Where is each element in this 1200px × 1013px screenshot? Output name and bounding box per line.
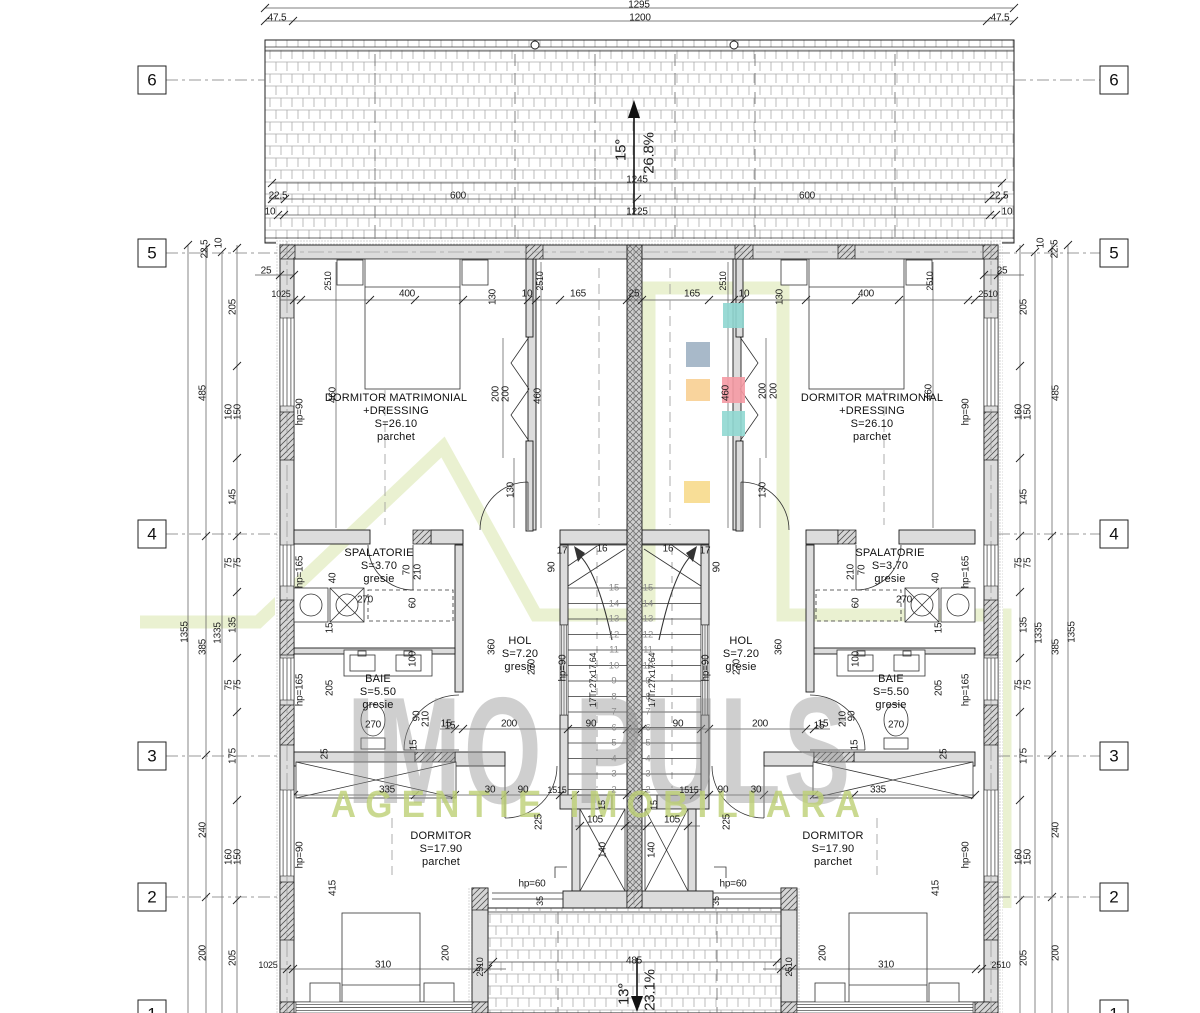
dim-label: 1355 <box>180 621 191 642</box>
grid-marker-right-1: 1 <box>1100 1000 1129 1013</box>
dim-label: 100 <box>408 651 419 667</box>
dim-label: hp=60 <box>518 879 545 890</box>
stair-tread-number: 3 <box>645 769 650 780</box>
dim-label: 2510 <box>535 271 545 290</box>
dim-label: 130 <box>775 289 786 305</box>
dim-label: 25 <box>997 266 1008 277</box>
dim-label: 200 <box>501 719 517 730</box>
dim-label: 26.8% <box>641 132 658 174</box>
grid-marker-left-4: 4 <box>138 520 167 549</box>
dim-label: 23.1% <box>642 969 659 1011</box>
stair-tread-number: 6 <box>611 722 616 733</box>
dim-label: 2510 <box>718 271 728 290</box>
dim-label: 25 <box>939 749 950 760</box>
dim-label: 210 <box>413 564 424 580</box>
dim-label: 205 <box>934 680 945 696</box>
dim-label: 200 <box>758 383 769 399</box>
furniture-swatch <box>686 379 710 401</box>
dim-label: hp=90 <box>961 841 972 868</box>
dim-label: 225 <box>722 814 733 830</box>
dim-label: 75 <box>1023 558 1034 569</box>
dim-label: 130 <box>758 482 769 498</box>
stair-tread-number: 3 <box>611 769 616 780</box>
dim-label: 22.5 <box>990 191 1009 202</box>
dim-label: 485 <box>626 956 642 967</box>
dim-label: 415 <box>931 880 942 896</box>
dim-label: 240 <box>198 822 209 838</box>
grid-marker-left-1: 1 <box>138 1000 167 1013</box>
dim-label: 22.5 <box>1050 240 1061 259</box>
dim-label: 47.5 <box>991 13 1010 24</box>
dim-label: 1200 <box>629 13 650 24</box>
dim-label: 15 <box>649 800 659 810</box>
dim-label: 15 <box>850 740 861 751</box>
dim-label: 10 <box>265 207 276 218</box>
dim-label: 105 <box>587 815 603 826</box>
dim-label: 1355 <box>1067 621 1078 642</box>
dim-label: 60 <box>408 598 419 609</box>
dim-label: 200 <box>198 945 209 961</box>
dim-label: 10 <box>522 289 533 300</box>
dim-label: 30 <box>751 785 762 796</box>
dim-label: 310 <box>375 960 391 971</box>
stair-tread-number: 8 <box>611 691 616 702</box>
dim-label: 200 <box>752 719 768 730</box>
dim-label: 460 <box>533 388 544 404</box>
dim-label: 90 <box>673 719 684 730</box>
dim-label: 22.5 <box>200 240 211 259</box>
dim-label: 90 <box>518 785 529 796</box>
dim-label: 16 <box>597 544 608 555</box>
dim-label: 40 <box>328 573 339 584</box>
room-label: BAIES=5.50gresie <box>873 673 909 712</box>
furniture-swatch <box>686 342 710 367</box>
dim-label: 485 <box>1051 385 1062 401</box>
dim-label: hp=90 <box>558 654 569 681</box>
stair-tread-number: 11 <box>609 645 619 656</box>
dim-label: 270 <box>357 595 373 606</box>
dim-label: 15° <box>613 139 630 161</box>
grid-marker-right-5: 5 <box>1100 239 1129 268</box>
dim-label: 35 <box>535 896 545 906</box>
dim-label: 205 <box>228 299 239 315</box>
dim-label: 90 <box>586 719 597 730</box>
dim-label: 2510 <box>323 271 333 290</box>
dim-label: 335 <box>870 785 886 796</box>
dim-label: 25 <box>629 289 640 300</box>
furniture-swatch <box>723 303 744 328</box>
dim-label: 205 <box>325 680 336 696</box>
dim-label: 205 <box>228 950 239 966</box>
dim-label: 400 <box>858 289 874 300</box>
dim-label: 1025 <box>271 289 290 299</box>
dim-label: hp=165 <box>295 556 306 588</box>
stair-tread-number: 2 <box>645 785 650 796</box>
dim-label: 145 <box>228 489 239 505</box>
room-label: DORMITORS=17.90parchet <box>802 830 863 869</box>
dim-label: 415 <box>328 880 339 896</box>
dim-label: 75 <box>233 680 244 691</box>
grid-marker-left-3: 3 <box>138 742 167 771</box>
dim-label: 200 <box>1051 945 1062 961</box>
dim-label: 600 <box>799 191 815 202</box>
room-label: HOLS=7.20gresie <box>723 635 759 674</box>
stair-tread-number: 9 <box>611 676 616 687</box>
dim-label: 17Tr.27x17.64 <box>647 653 657 708</box>
dim-label: hp=60 <box>719 879 746 890</box>
grid-marker-right-6: 6 <box>1100 66 1129 95</box>
dim-label: 1335 <box>1034 622 1045 643</box>
dim-label: 100 <box>851 651 862 667</box>
stair-tread-number: 5 <box>611 738 616 749</box>
dim-label: 2510 <box>978 289 997 299</box>
dim-label: 90 <box>547 562 558 573</box>
dim-label: 15 <box>597 800 607 810</box>
dim-label: 15 <box>409 740 420 751</box>
dim-label: 90 <box>712 562 723 573</box>
grid-marker-left-5: 5 <box>138 239 167 268</box>
dim-label: 1225 <box>626 207 647 218</box>
dim-label: 360 <box>774 639 785 655</box>
dim-label: 225 <box>534 814 545 830</box>
stair-tread-number: 7 <box>645 707 650 718</box>
dim-label: 1295 <box>628 0 649 11</box>
dim-label: 205 <box>1019 950 1030 966</box>
dim-label: 17 <box>700 546 711 557</box>
dim-label: hp=90 <box>701 654 712 681</box>
stair-tread-number: 7 <box>611 707 616 718</box>
stair-tread-number: 5 <box>645 738 650 749</box>
grid-marker-left-2: 2 <box>138 883 167 912</box>
stair-tread-number: 2 <box>611 785 616 796</box>
dim-label: 1515 <box>679 785 698 795</box>
dim-label: 335 <box>379 785 395 796</box>
floorplan-canvas: IMO PULS AGENTIE IMOBILIARA 129547.51200… <box>0 0 1200 1013</box>
dim-label: 30 <box>485 785 496 796</box>
stair-tread-number: 15 <box>609 583 620 594</box>
dim-label: 310 <box>878 960 894 971</box>
dim-label: 10 <box>739 289 750 300</box>
dim-label: 385 <box>1051 639 1062 655</box>
dim-label: 130 <box>488 289 499 305</box>
dim-label: 240 <box>1051 822 1062 838</box>
stair-tread-number: 15 <box>643 583 654 594</box>
dim-label: 1245 <box>626 175 647 186</box>
stair-tread-number: 13 <box>609 614 620 625</box>
dim-label: 150 <box>233 404 244 420</box>
dim-label: hp=165 <box>961 556 972 588</box>
dim-label: 90 <box>718 785 729 796</box>
dim-label: 200 <box>818 945 829 961</box>
dim-label: 10 <box>1036 238 1047 249</box>
furniture-swatch <box>722 411 745 436</box>
dim-label: 270 <box>365 720 381 731</box>
room-label: SPALATORIES=3.70gresie <box>855 547 924 586</box>
dim-label: 47.5 <box>268 13 287 24</box>
dim-label: 200 <box>501 386 512 402</box>
dim-label: 60 <box>851 598 862 609</box>
room-label: HOLS=7.20gresie <box>502 635 538 674</box>
stair-tread-number: 14 <box>643 598 654 609</box>
dim-label: 1335 <box>213 622 224 643</box>
dim-label: 17 <box>557 546 568 557</box>
stair-tread-number: 12 <box>609 629 620 640</box>
stair-tread-number: 12 <box>643 629 654 640</box>
dim-label: 2510 <box>475 957 485 976</box>
room-label: DORMITOR MATRIMONIAL+DRESSINGS=26.10parc… <box>801 392 943 444</box>
dim-label: 145 <box>1019 489 1030 505</box>
dim-label: 16 <box>663 544 674 555</box>
room-label: DORMITOR MATRIMONIAL+DRESSINGS=26.10parc… <box>325 392 467 444</box>
dim-label: 25 <box>320 749 331 760</box>
dim-label: 270 <box>888 720 904 731</box>
dim-label: 75 <box>1023 680 1034 691</box>
dim-label: 10 <box>214 238 225 249</box>
dim-label: 15 <box>818 719 829 730</box>
dim-label: 130 <box>506 482 517 498</box>
dim-label: 105 <box>664 815 680 826</box>
room-label: DORMITORS=17.90parchet <box>410 830 471 869</box>
dim-label: 400 <box>399 289 415 300</box>
dim-label: 35 <box>711 896 721 906</box>
dim-label: hp=165 <box>295 674 306 706</box>
stair-tread-number: 14 <box>609 598 620 609</box>
dim-label: 485 <box>198 385 209 401</box>
dim-label: 2510 <box>925 271 935 290</box>
grid-marker-left-6: 6 <box>138 66 167 95</box>
dim-label: 2510 <box>784 957 794 976</box>
dim-label: 15 <box>325 623 336 634</box>
stair-tread-number: 10 <box>609 660 620 671</box>
stair-tread-number: 4 <box>645 753 650 764</box>
dim-label: 360 <box>487 639 498 655</box>
grid-marker-right-2: 2 <box>1100 883 1129 912</box>
dim-label: 75 <box>233 558 244 569</box>
dim-label: 15 <box>441 719 452 730</box>
room-label: BAIES=5.50gresie <box>360 673 396 712</box>
dim-label: 2510 <box>991 960 1010 970</box>
dim-label: 1025 <box>258 960 277 970</box>
dim-label: hp=90 <box>961 398 972 425</box>
dim-label: 165 <box>570 289 586 300</box>
dim-label: 135 <box>228 617 239 633</box>
dim-label: 135 <box>1019 617 1030 633</box>
dim-label: 200 <box>441 945 452 961</box>
dim-label: 200 <box>769 383 780 399</box>
dim-label: 175 <box>1019 748 1030 764</box>
stair-tread-number: 4 <box>611 753 616 764</box>
dim-label: 140 <box>647 842 658 858</box>
dim-label: 460 <box>721 385 732 401</box>
dim-label: 17Tr.27x17.64 <box>588 653 598 708</box>
dim-label: 40 <box>931 573 942 584</box>
dim-label: 140 <box>598 842 609 858</box>
dim-label: 1515 <box>547 785 566 795</box>
dim-label: 600 <box>450 191 466 202</box>
stair-tread-number: 13 <box>643 614 654 625</box>
dim-label: hp=90 <box>295 841 306 868</box>
room-label: SPALATORIES=3.70gresie <box>344 547 413 586</box>
grid-marker-right-3: 3 <box>1100 742 1129 771</box>
dim-label: 15 <box>934 623 945 634</box>
dim-label: hp=90 <box>295 398 306 425</box>
dim-label: 10 <box>1002 207 1013 218</box>
grid-marker-right-4: 4 <box>1100 520 1129 549</box>
dim-label: 150 <box>1023 849 1034 865</box>
dim-label: hp=165 <box>961 674 972 706</box>
dim-label: 210 <box>838 711 849 727</box>
dim-label: 150 <box>233 849 244 865</box>
furniture-swatch <box>684 481 710 503</box>
dim-label: 22.5 <box>269 191 288 202</box>
dim-label: 385 <box>198 639 209 655</box>
stair-tread-number: 6 <box>645 722 650 733</box>
dim-label: 165 <box>684 289 700 300</box>
dim-label: 205 <box>1019 299 1030 315</box>
dim-label: 210 <box>421 711 432 727</box>
dim-label: 150 <box>1023 404 1034 420</box>
dim-label: 13° <box>616 983 633 1005</box>
dim-label: 175 <box>228 748 239 764</box>
dim-label: 270 <box>896 595 912 606</box>
dim-label: 25 <box>261 266 272 277</box>
